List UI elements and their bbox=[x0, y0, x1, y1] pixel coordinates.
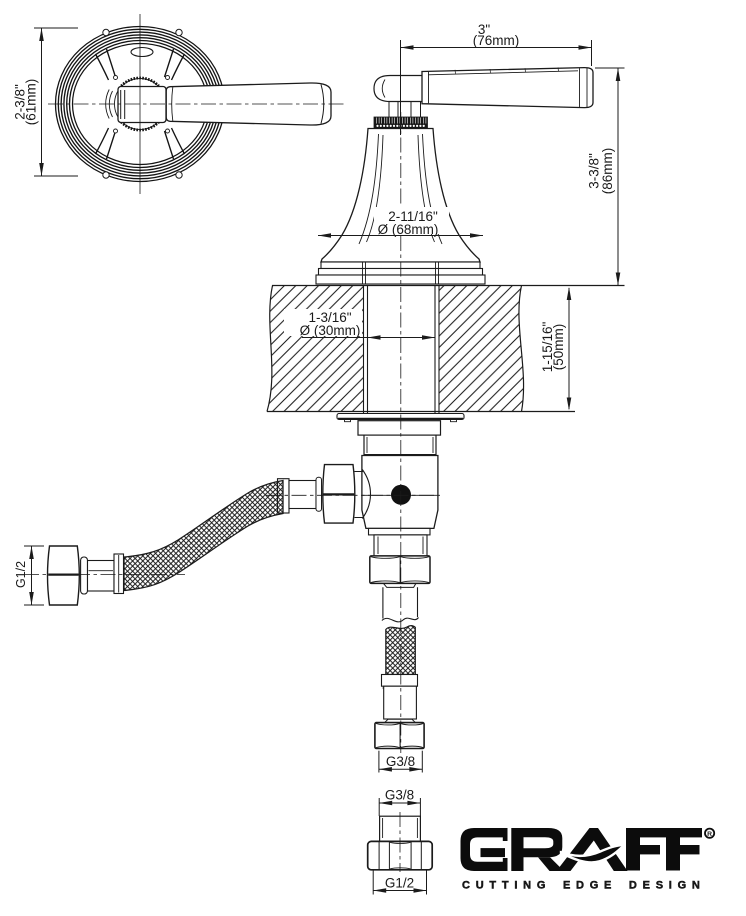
svg-text:Ø (30mm): Ø (30mm) bbox=[300, 323, 361, 338]
svg-text:(86mm): (86mm) bbox=[600, 148, 615, 195]
svg-text:G1/2: G1/2 bbox=[385, 876, 414, 891]
svg-text:Ø (68mm): Ø (68mm) bbox=[378, 222, 439, 237]
svg-text:G3/8: G3/8 bbox=[385, 788, 414, 803]
svg-text:(61mm): (61mm) bbox=[24, 79, 39, 126]
svg-text:(50mm): (50mm) bbox=[551, 324, 566, 371]
svg-text:G3/8: G3/8 bbox=[386, 754, 415, 769]
svg-text:R: R bbox=[707, 831, 712, 838]
svg-text:(76mm): (76mm) bbox=[473, 33, 520, 48]
svg-text:CUTTING EDGE DESIGN: CUTTING EDGE DESIGN bbox=[462, 880, 706, 892]
